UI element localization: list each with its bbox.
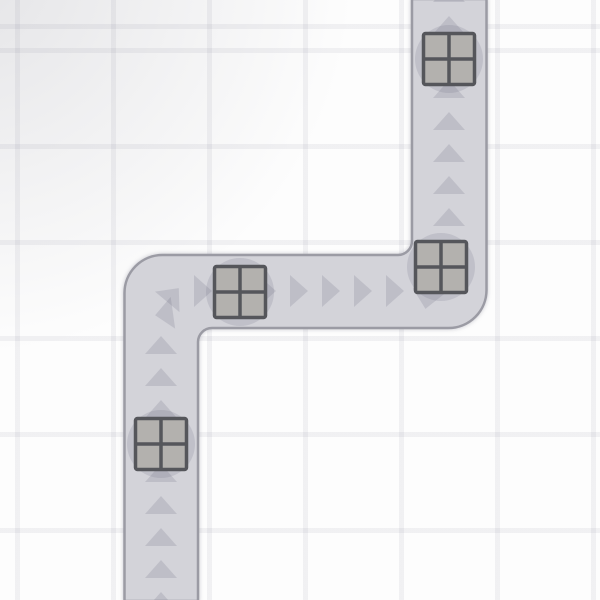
crate[interactable] [415, 25, 483, 93]
crate[interactable] [127, 410, 195, 478]
conveyor-layer [0, 0, 600, 600]
crate[interactable] [407, 233, 475, 301]
game-board [0, 0, 600, 600]
crate[interactable] [206, 258, 274, 326]
flow-arrow-icon [433, 0, 465, 2]
